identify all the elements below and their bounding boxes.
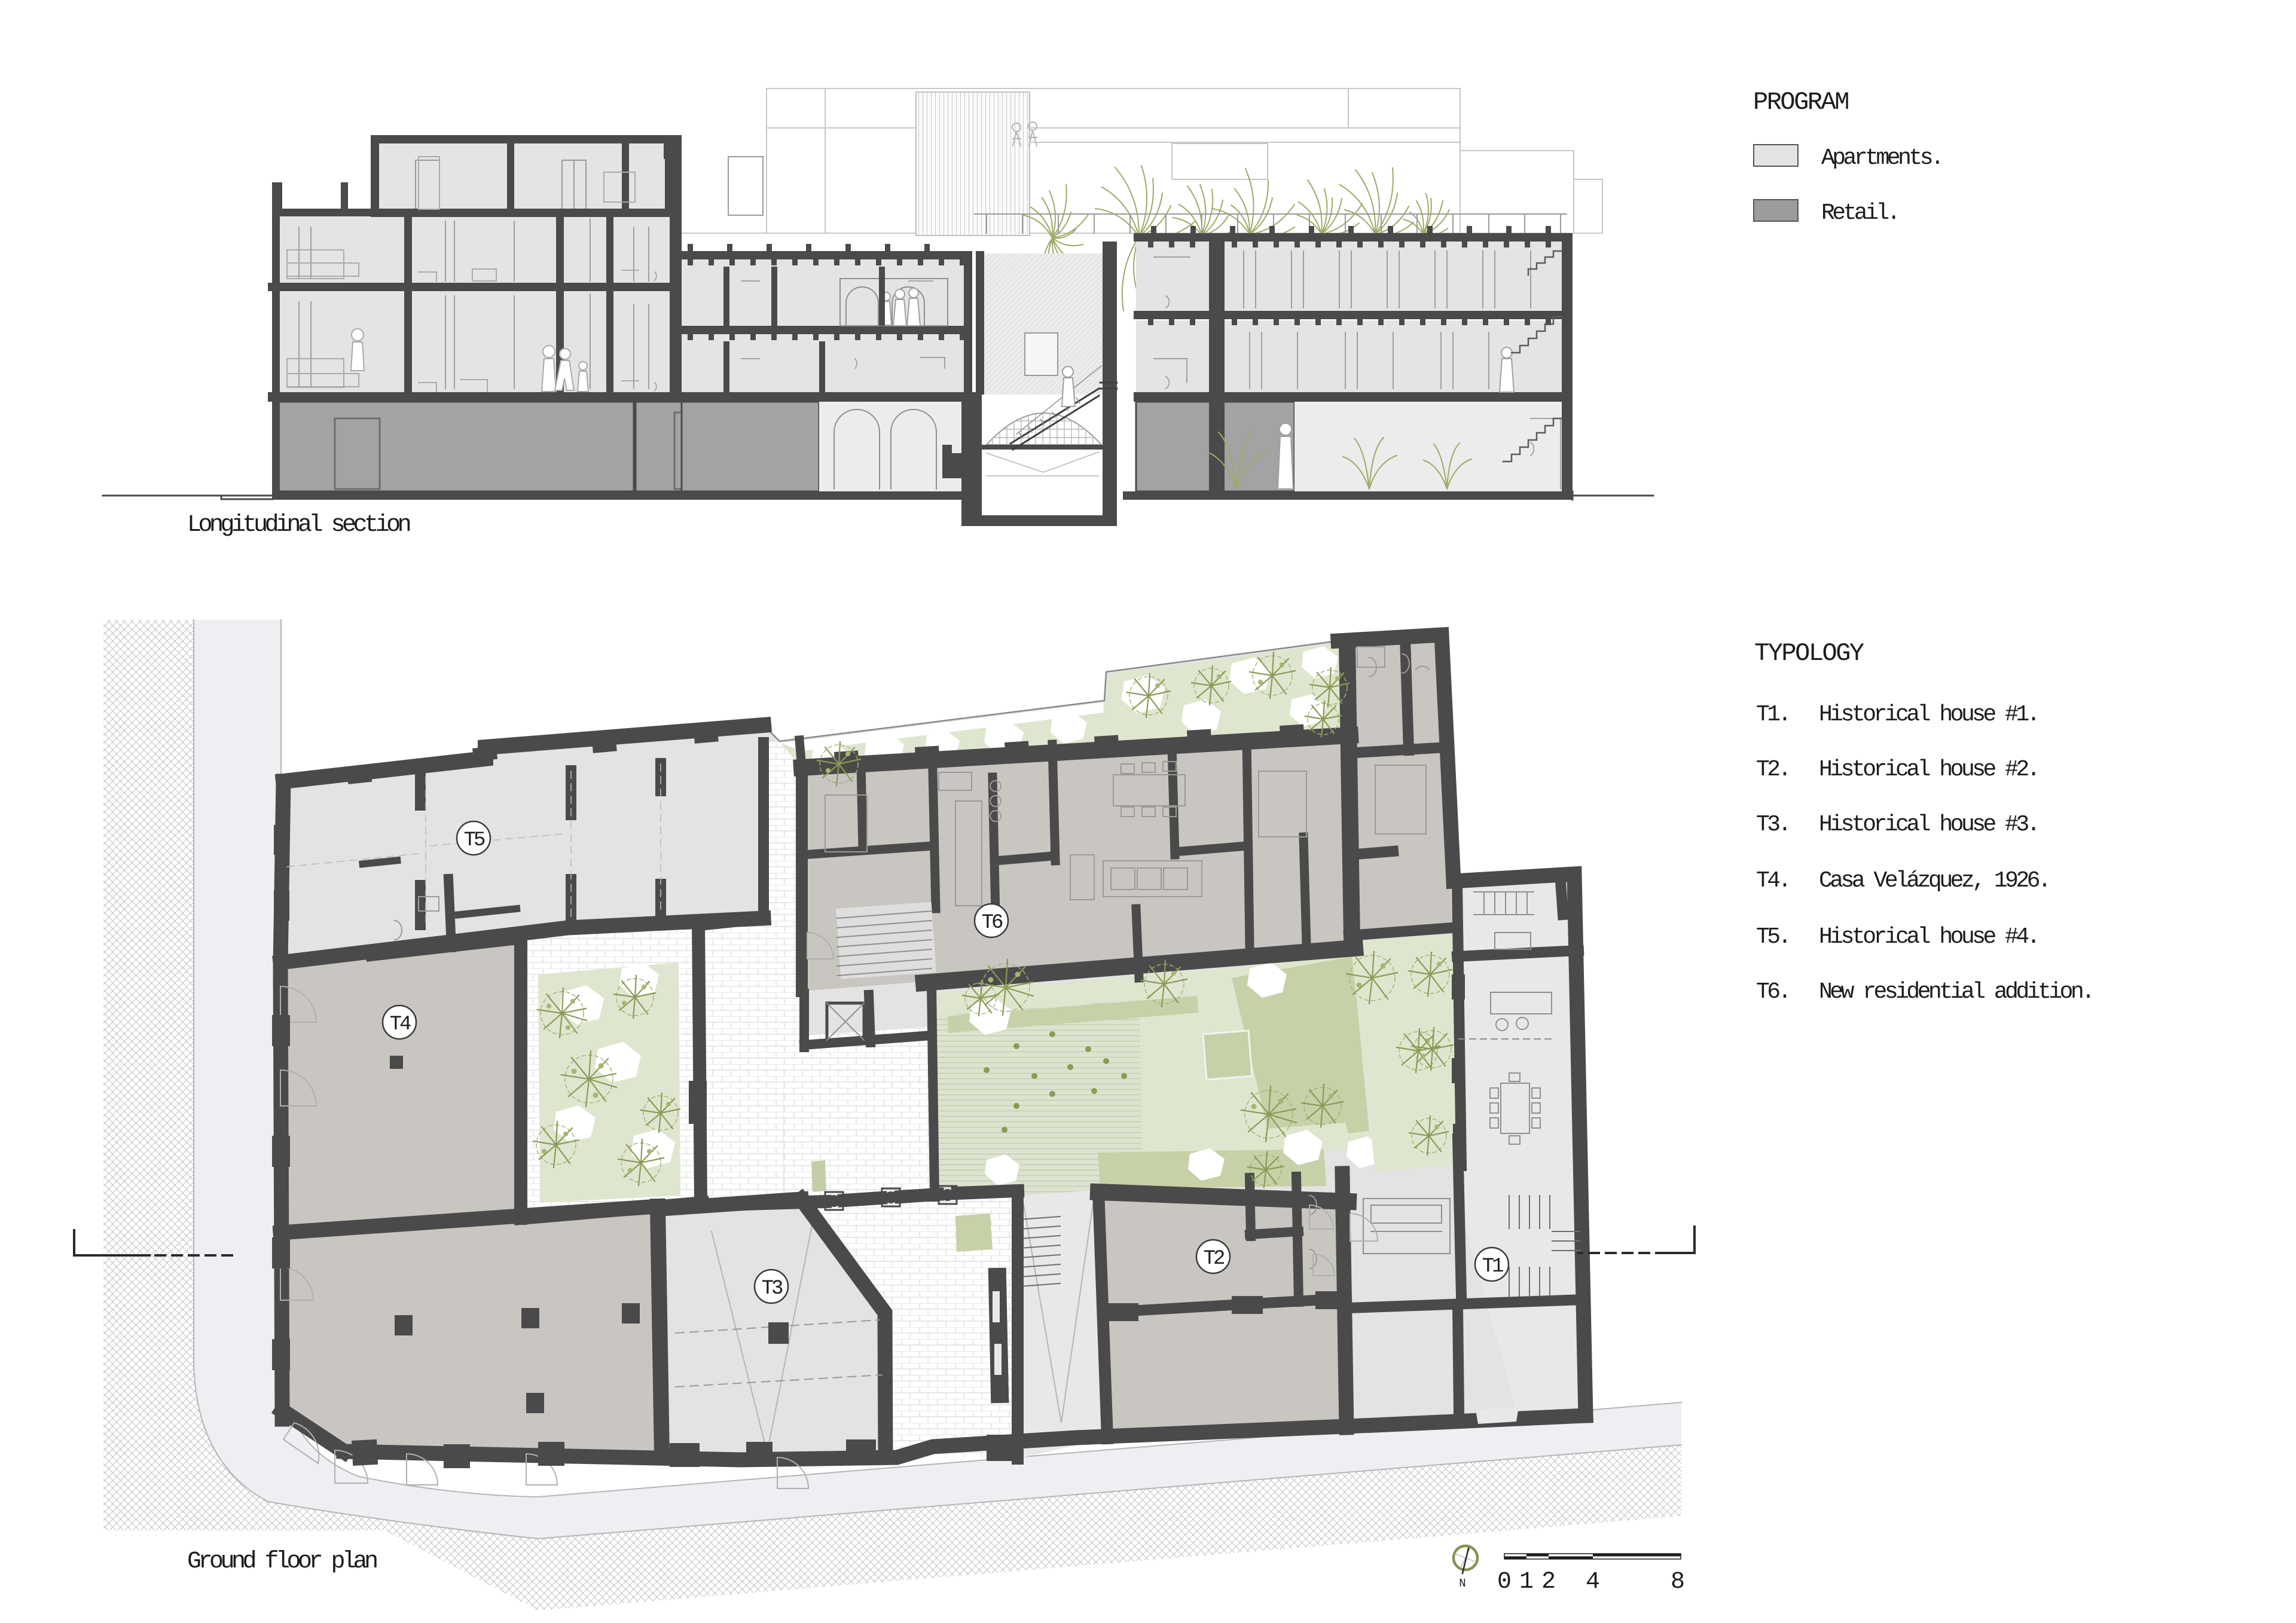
svg-text:T2: T2 xyxy=(1204,1248,1224,1270)
svg-text:Apartments.: Apartments. xyxy=(1821,145,1941,171)
svg-text:T6.: T6. xyxy=(1756,979,1789,1005)
svg-text:T1: T1 xyxy=(1482,1255,1503,1278)
svg-text:8: 8 xyxy=(1671,1569,1685,1596)
svg-text:T6: T6 xyxy=(982,912,1003,934)
svg-text:Historical house #1.: Historical house #1. xyxy=(1819,702,2038,728)
svg-text:Historical house #3.: Historical house #3. xyxy=(1819,812,2038,838)
svg-text:T1.: T1. xyxy=(1756,702,1789,728)
svg-text:Historical house #2.: Historical house #2. xyxy=(1819,757,2038,783)
svg-text:Historical house #4.: Historical house #4. xyxy=(1819,924,2038,950)
svg-text:T5.: T5. xyxy=(1756,924,1789,950)
svg-text:New residential addition.: New residential addition. xyxy=(1819,979,2093,1005)
svg-text:T4.: T4. xyxy=(1756,868,1789,894)
svg-text:N: N xyxy=(1459,1577,1465,1590)
svg-text:Ground floor plan: Ground floor plan xyxy=(187,1548,377,1575)
svg-text:Retail.: Retail. xyxy=(1821,200,1898,226)
svg-text:T4: T4 xyxy=(390,1013,411,1036)
svg-text:1: 1 xyxy=(1519,1569,1534,1596)
svg-text:PROGRAM: PROGRAM xyxy=(1753,88,1848,117)
svg-text:0: 0 xyxy=(1497,1569,1512,1596)
svg-text:T3: T3 xyxy=(762,1277,783,1300)
svg-text:2: 2 xyxy=(1541,1569,1556,1596)
svg-text:Casa Velázquez, 1926.: Casa Velázquez, 1926. xyxy=(1819,868,2048,894)
svg-text:Longitudinal section: Longitudinal section xyxy=(187,512,410,539)
svg-text:T3.: T3. xyxy=(1756,812,1789,838)
svg-text:TYPOLOGY: TYPOLOGY xyxy=(1754,639,1864,668)
svg-text:T5: T5 xyxy=(464,829,485,852)
svg-text:T2.: T2. xyxy=(1756,757,1789,783)
svg-text:4: 4 xyxy=(1586,1569,1600,1596)
